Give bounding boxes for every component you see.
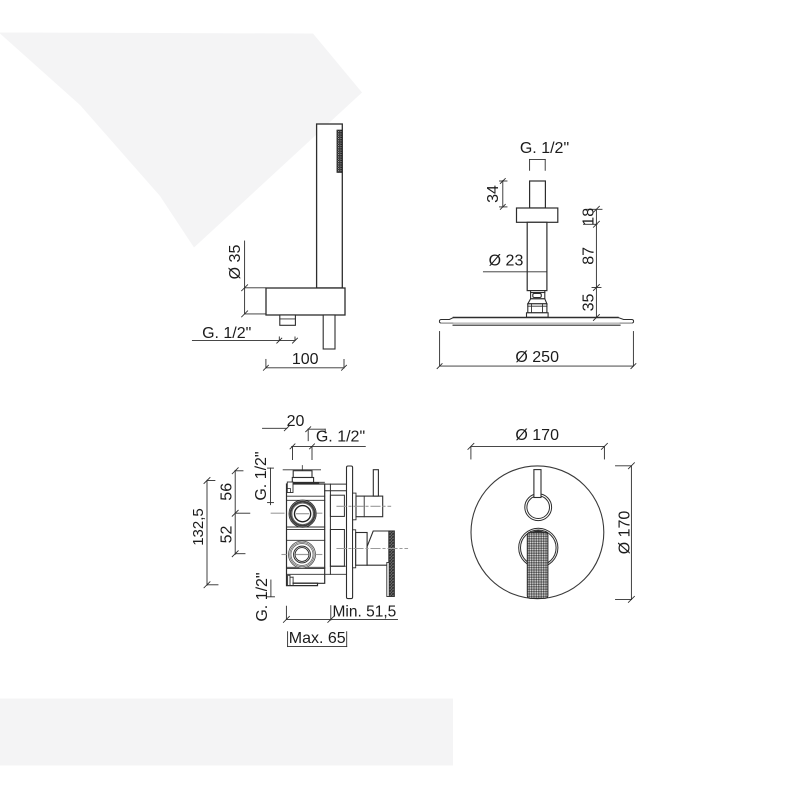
svg-text:G. 1/2": G. 1/2"	[253, 451, 270, 500]
svg-text:18: 18	[581, 208, 598, 226]
svg-text:Ø 170: Ø 170	[617, 511, 634, 555]
svg-text:Ø 23: Ø 23	[489, 253, 524, 270]
svg-text:G. 1/2": G. 1/2"	[316, 429, 365, 446]
svg-text:G. 1/2": G. 1/2"	[520, 140, 569, 157]
svg-text:87: 87	[581, 247, 598, 265]
svg-text:132,5: 132,5	[190, 508, 207, 546]
svg-text:Ø 170: Ø 170	[515, 427, 559, 444]
svg-text:56: 56	[219, 483, 236, 501]
svg-text:34: 34	[485, 185, 502, 203]
svg-text:35: 35	[581, 294, 598, 312]
svg-text:Ø 250: Ø 250	[515, 349, 559, 366]
svg-text:52: 52	[219, 526, 236, 544]
svg-text:Ø 35: Ø 35	[227, 245, 244, 280]
svg-text:Max. 65: Max. 65	[289, 630, 346, 647]
svg-text:Min. 51,5: Min. 51,5	[333, 604, 397, 621]
svg-text:20: 20	[287, 413, 305, 430]
svg-text:100: 100	[292, 351, 319, 368]
svg-text:G. 1/2": G. 1/2"	[202, 325, 251, 342]
